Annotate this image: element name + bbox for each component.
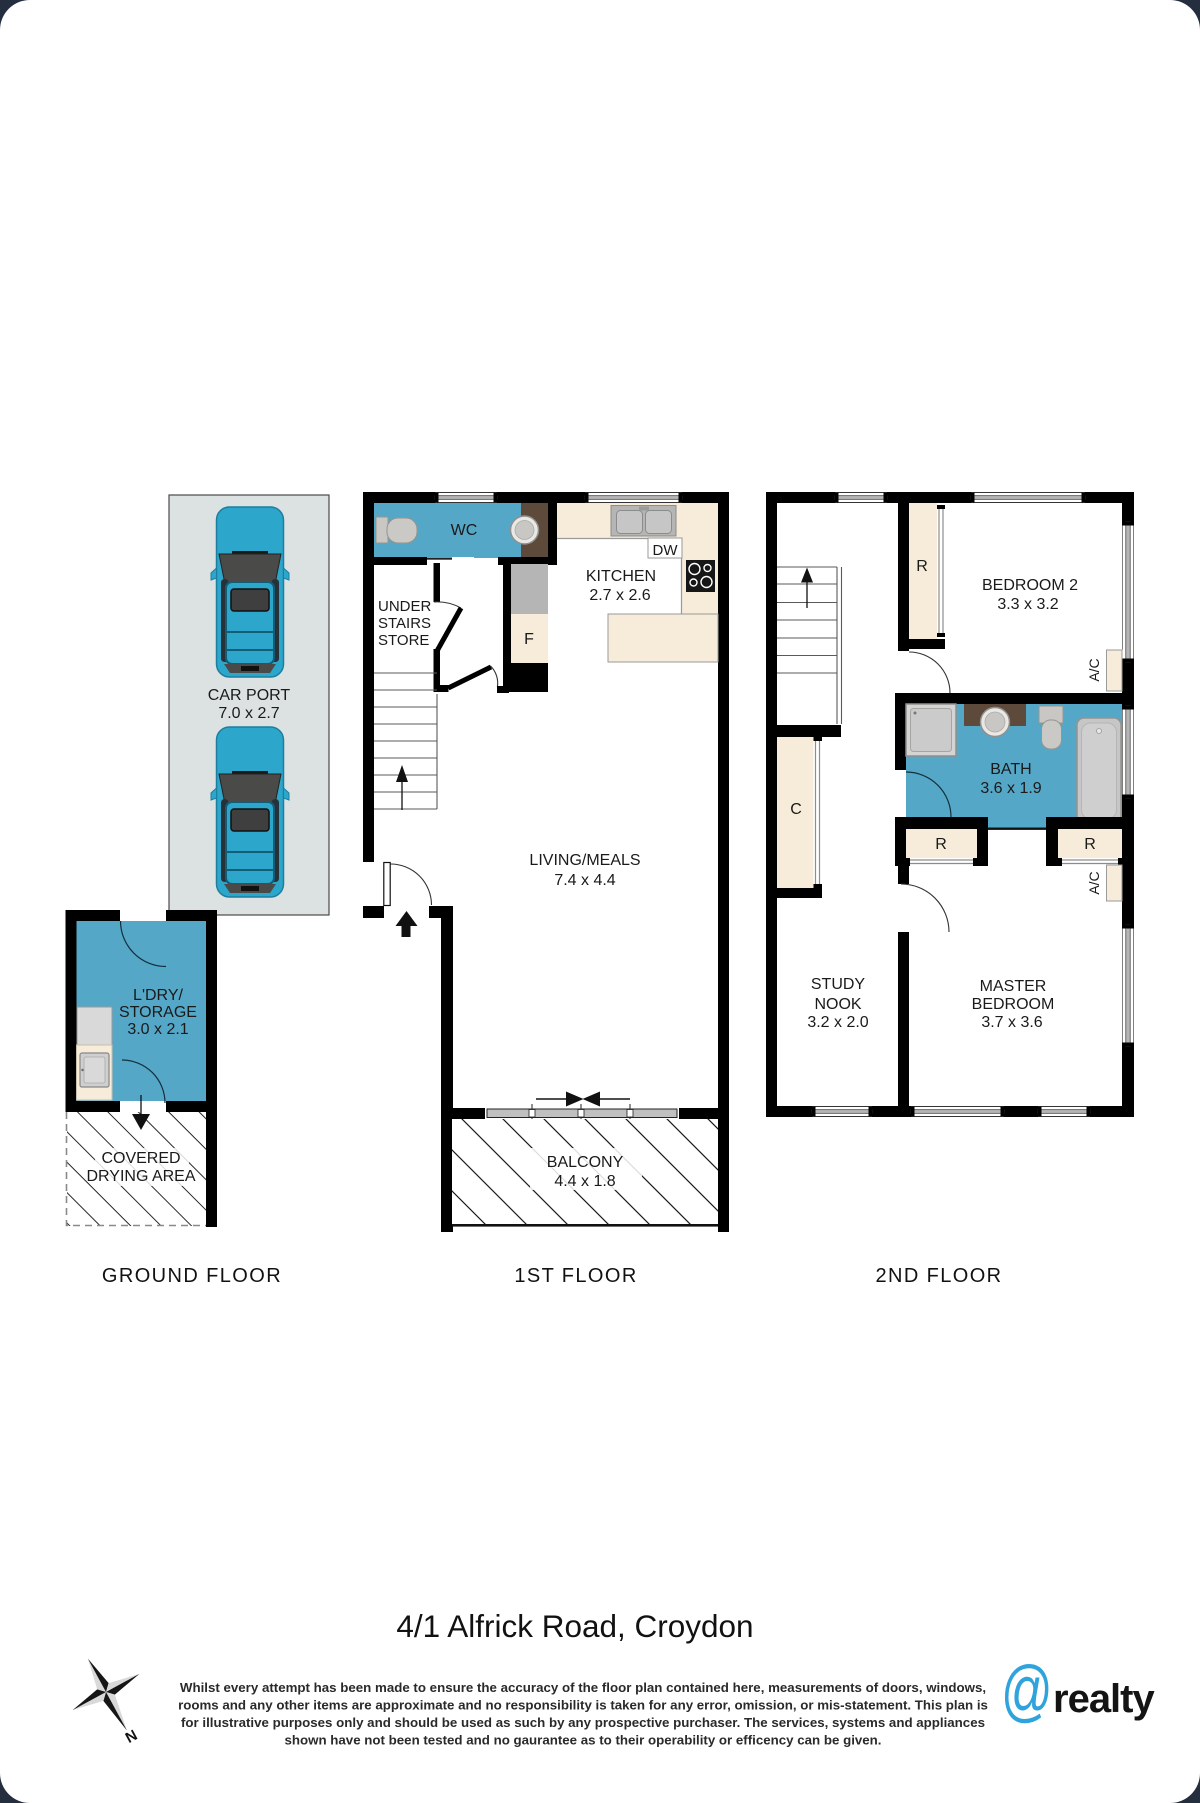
svg-text:3.6 x 1.9: 3.6 x 1.9: [980, 780, 1041, 797]
svg-text:CAR PORT: CAR PORT: [208, 687, 291, 704]
svg-text:A/C: A/C: [1086, 658, 1102, 681]
svg-text:@: @: [1000, 1651, 1052, 1728]
svg-text:C: C: [790, 801, 802, 818]
svg-text:BATH: BATH: [990, 761, 1031, 778]
svg-text:BEDROOM: BEDROOM: [972, 996, 1055, 1013]
svg-text:DRYING AREA: DRYING AREA: [86, 1168, 195, 1185]
svg-text:COVERED: COVERED: [101, 1150, 180, 1167]
svg-text:3.7 x 3.6: 3.7 x 3.6: [981, 1014, 1042, 1031]
svg-text:3.0 x 2.1: 3.0 x 2.1: [127, 1021, 188, 1038]
svg-text:2ND FLOOR: 2ND FLOOR: [875, 1265, 1002, 1287]
svg-text:for illustrative purposes only: for illustrative purposes only and shoul…: [181, 1715, 985, 1730]
svg-text:UNDER: UNDER: [378, 598, 432, 615]
svg-text:F: F: [524, 631, 534, 648]
svg-text:3.2 x 2.0: 3.2 x 2.0: [807, 1014, 868, 1031]
svg-text:STORE: STORE: [378, 632, 429, 649]
svg-text:2.7 x 2.6: 2.7 x 2.6: [589, 587, 650, 604]
svg-text:rooms and any other items are: rooms and any other items are approximat…: [178, 1698, 988, 1713]
svg-text:R: R: [1084, 836, 1096, 853]
svg-text:7.0 x 2.7: 7.0 x 2.7: [218, 705, 279, 722]
svg-text:STUDY: STUDY: [811, 976, 866, 993]
svg-text:A/C: A/C: [1086, 871, 1102, 894]
svg-text:shown have not been tested and: shown have not been tested and no gauran…: [284, 1733, 881, 1748]
svg-text:4/1 Alfrick Road, Croydon: 4/1 Alfrick Road, Croydon: [396, 1608, 753, 1644]
svg-text:KITCHEN: KITCHEN: [586, 568, 656, 585]
svg-text:R: R: [935, 836, 947, 853]
svg-text:3.3 x 3.2: 3.3 x 3.2: [997, 596, 1058, 613]
svg-text:GROUND FLOOR: GROUND FLOOR: [102, 1265, 282, 1287]
svg-text:7.4 x 4.4: 7.4 x 4.4: [554, 872, 615, 889]
svg-text:1ST FLOOR: 1ST FLOOR: [514, 1265, 637, 1287]
svg-text:realty: realty: [1053, 1677, 1155, 1721]
svg-text:R: R: [916, 558, 928, 575]
svg-text:STORAGE: STORAGE: [119, 1004, 197, 1021]
svg-text:NOOK: NOOK: [814, 996, 861, 1013]
svg-text:Whilst every attempt has been: Whilst every attempt has been made to en…: [180, 1680, 986, 1695]
svg-text:WC: WC: [451, 522, 478, 539]
svg-text:BEDROOM 2: BEDROOM 2: [982, 577, 1078, 594]
svg-text:DW: DW: [653, 542, 679, 559]
svg-text:MASTER: MASTER: [980, 978, 1047, 995]
svg-text:L'DRY/: L'DRY/: [133, 987, 183, 1004]
svg-text:STAIRS: STAIRS: [378, 615, 431, 632]
svg-text:LIVING/MEALS: LIVING/MEALS: [529, 852, 640, 869]
svg-text:4.4 x 1.8: 4.4 x 1.8: [554, 1173, 615, 1190]
svg-text:BALCONY: BALCONY: [547, 1154, 624, 1171]
